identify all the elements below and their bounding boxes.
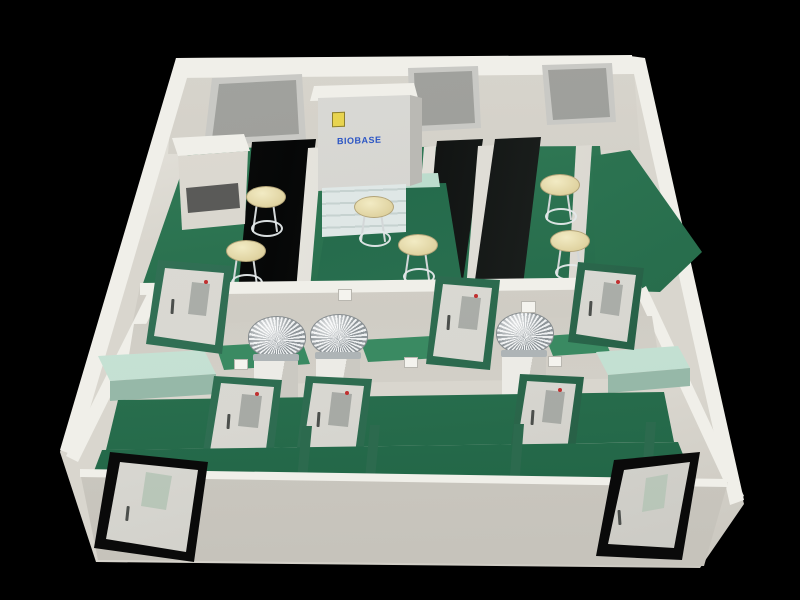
lab-3d-render: BIOBASE xyxy=(0,0,800,600)
door-sign-dot xyxy=(616,280,620,284)
stool-footring xyxy=(251,220,283,237)
dome-base xyxy=(253,354,299,361)
chrome-dome xyxy=(248,316,306,358)
lab-stool xyxy=(244,186,288,244)
door-sign-dot xyxy=(558,388,562,392)
wall-sign xyxy=(234,359,248,370)
wall-sign xyxy=(548,356,562,367)
door-sign-dot xyxy=(255,392,259,396)
warning-sticker xyxy=(332,112,345,127)
light-switch xyxy=(521,301,536,313)
lab-stool xyxy=(538,174,582,232)
door-sign-dot xyxy=(474,294,478,298)
stool-seat xyxy=(246,186,286,208)
light-switch xyxy=(338,289,352,301)
door-sign-dot xyxy=(204,280,208,284)
door-sign-dot xyxy=(345,391,349,395)
lab-stool xyxy=(352,196,396,254)
wall-sign xyxy=(404,357,418,368)
